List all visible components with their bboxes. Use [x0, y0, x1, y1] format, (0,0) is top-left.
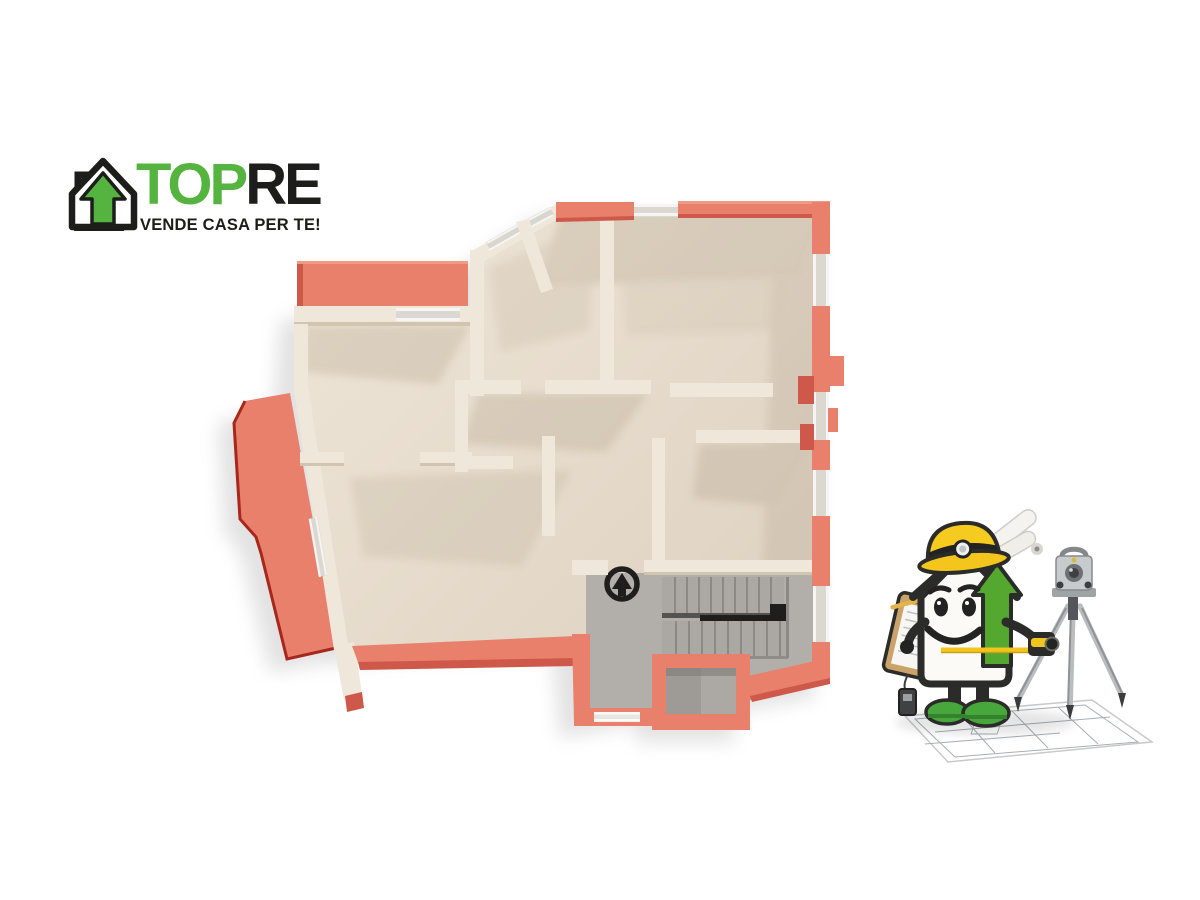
- theodolite: [1052, 549, 1096, 597]
- house-arrow-up-icon: [64, 154, 140, 240]
- brand-name-top: TOP: [136, 152, 245, 217]
- mascot-illustration: [0, 0, 1200, 900]
- brand-name-re: RE: [245, 152, 320, 217]
- theodolite-accent: [1072, 558, 1077, 563]
- brand-name: TOPRE: [136, 156, 320, 214]
- hand-left: [900, 640, 914, 654]
- mascot-character: [876, 507, 1075, 735]
- listing-image: TOPRE VENDE CASA PER TE!: [0, 0, 1200, 900]
- theodolite-knob: [1057, 582, 1064, 589]
- theodolite-knob: [1085, 582, 1092, 589]
- hanging-gadget: [899, 689, 916, 715]
- hard-hat: [915, 518, 1010, 576]
- brand-tagline: VENDE CASA PER TE!: [140, 216, 321, 235]
- eye: [962, 598, 976, 617]
- eye-glint: [937, 601, 941, 605]
- hand-right: [1046, 638, 1059, 651]
- eye-glint: [965, 601, 969, 605]
- gadget-screen: [903, 694, 912, 701]
- theodolite-handle: [1062, 549, 1086, 556]
- shoe: [963, 700, 1009, 726]
- eye: [934, 598, 948, 617]
- lens-glint: [1069, 568, 1073, 572]
- brand-logo: TOPRE VENDE CASA PER TE!: [64, 152, 364, 247]
- tripod-column: [1068, 594, 1078, 620]
- roll-end-hole: [1035, 547, 1040, 552]
